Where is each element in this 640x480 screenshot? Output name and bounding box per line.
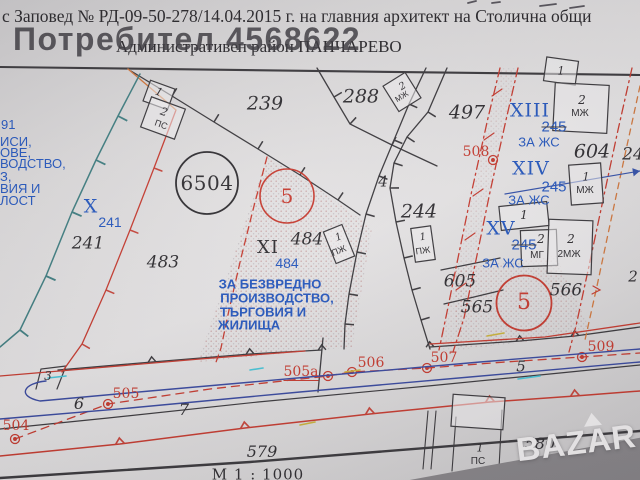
label-241-black: 241 (72, 236, 104, 253)
user-watermark-overlay: Потребител 4568622 (13, 21, 361, 58)
label-288: 288 (343, 88, 379, 107)
label-241-blue: 241 (98, 215, 121, 229)
label-506: 506 (358, 356, 385, 370)
label-zajs-xiii: ЗА ЖС (518, 136, 559, 149)
label-566: 566 (550, 283, 582, 300)
building-num: 1 (558, 66, 565, 77)
label-street-4: 4 (378, 175, 388, 190)
building-num: 1 (419, 233, 427, 244)
label-5-circle-right: 5 (517, 292, 531, 314)
building-code: МЖ (576, 186, 594, 196)
zone-text-line-1: ЗА БЕЗВРЕДНО (219, 278, 322, 291)
label-508: 508 (463, 145, 490, 159)
label-504: 504 (3, 419, 30, 433)
edge-text-91: 91 (1, 118, 15, 131)
building-code: МЖ (571, 109, 589, 119)
label-3: 3 (44, 370, 52, 382)
building-num: 2 (537, 233, 545, 245)
label-497: 497 (449, 104, 485, 123)
zone-text-line-4: ЖИЛИЩА (218, 319, 280, 332)
label-245-xiii: 245 (541, 120, 566, 135)
label-483: 483 (147, 255, 179, 272)
building-num: 1 (477, 443, 484, 454)
label-street-7: 7 (179, 402, 189, 418)
label-244: 244 (401, 203, 437, 222)
edge-text-lost: ЛОСТ (0, 194, 36, 207)
label-604: 604 (574, 143, 610, 162)
building-num: 2 (567, 233, 575, 245)
label-239: 239 (247, 95, 283, 114)
label-6504: 6504 (181, 173, 234, 193)
building-code: МГ (530, 251, 544, 261)
building-code: 2МЖ (557, 250, 580, 260)
label-579: 579 (247, 444, 278, 460)
label-509: 509 (588, 340, 615, 354)
label-X: X (84, 198, 99, 217)
scale-label: М 1 : 1000 (212, 468, 304, 480)
building-num: 2 (578, 94, 586, 106)
label-565: 565 (461, 300, 493, 317)
building-num: 1 (520, 209, 528, 221)
label-605: 605 (444, 274, 476, 291)
building-num: 1 (583, 172, 590, 183)
label-24-clipped: 24 (622, 147, 640, 164)
label-505a: 505а (283, 365, 318, 381)
label-5-circle-left: 5 (281, 186, 294, 206)
label-street-6: 6 (74, 396, 84, 412)
label-507: 507 (431, 351, 458, 365)
label-zajs-xiv: ЗА ЖС (508, 194, 549, 207)
label-484-blue: 484 (275, 256, 298, 270)
label-505: 505 (113, 387, 140, 401)
camera-icon (583, 412, 602, 427)
building-code: ПС (471, 457, 485, 467)
label-street-5: 5 (516, 360, 526, 375)
cadastral-plan-photo: 239 288 497 604 24 XIII 245 ЗА ЖС XIV 24… (0, 0, 640, 480)
zone-text-line-2: ПРОИЗВОДСТВО, (220, 292, 334, 305)
label-zajs-xv: ЗА ЖС (482, 257, 523, 270)
label-2-clipped: 2 (628, 270, 638, 285)
label-XIV: XIV (512, 160, 550, 179)
label-484-black: 484 (291, 232, 323, 249)
